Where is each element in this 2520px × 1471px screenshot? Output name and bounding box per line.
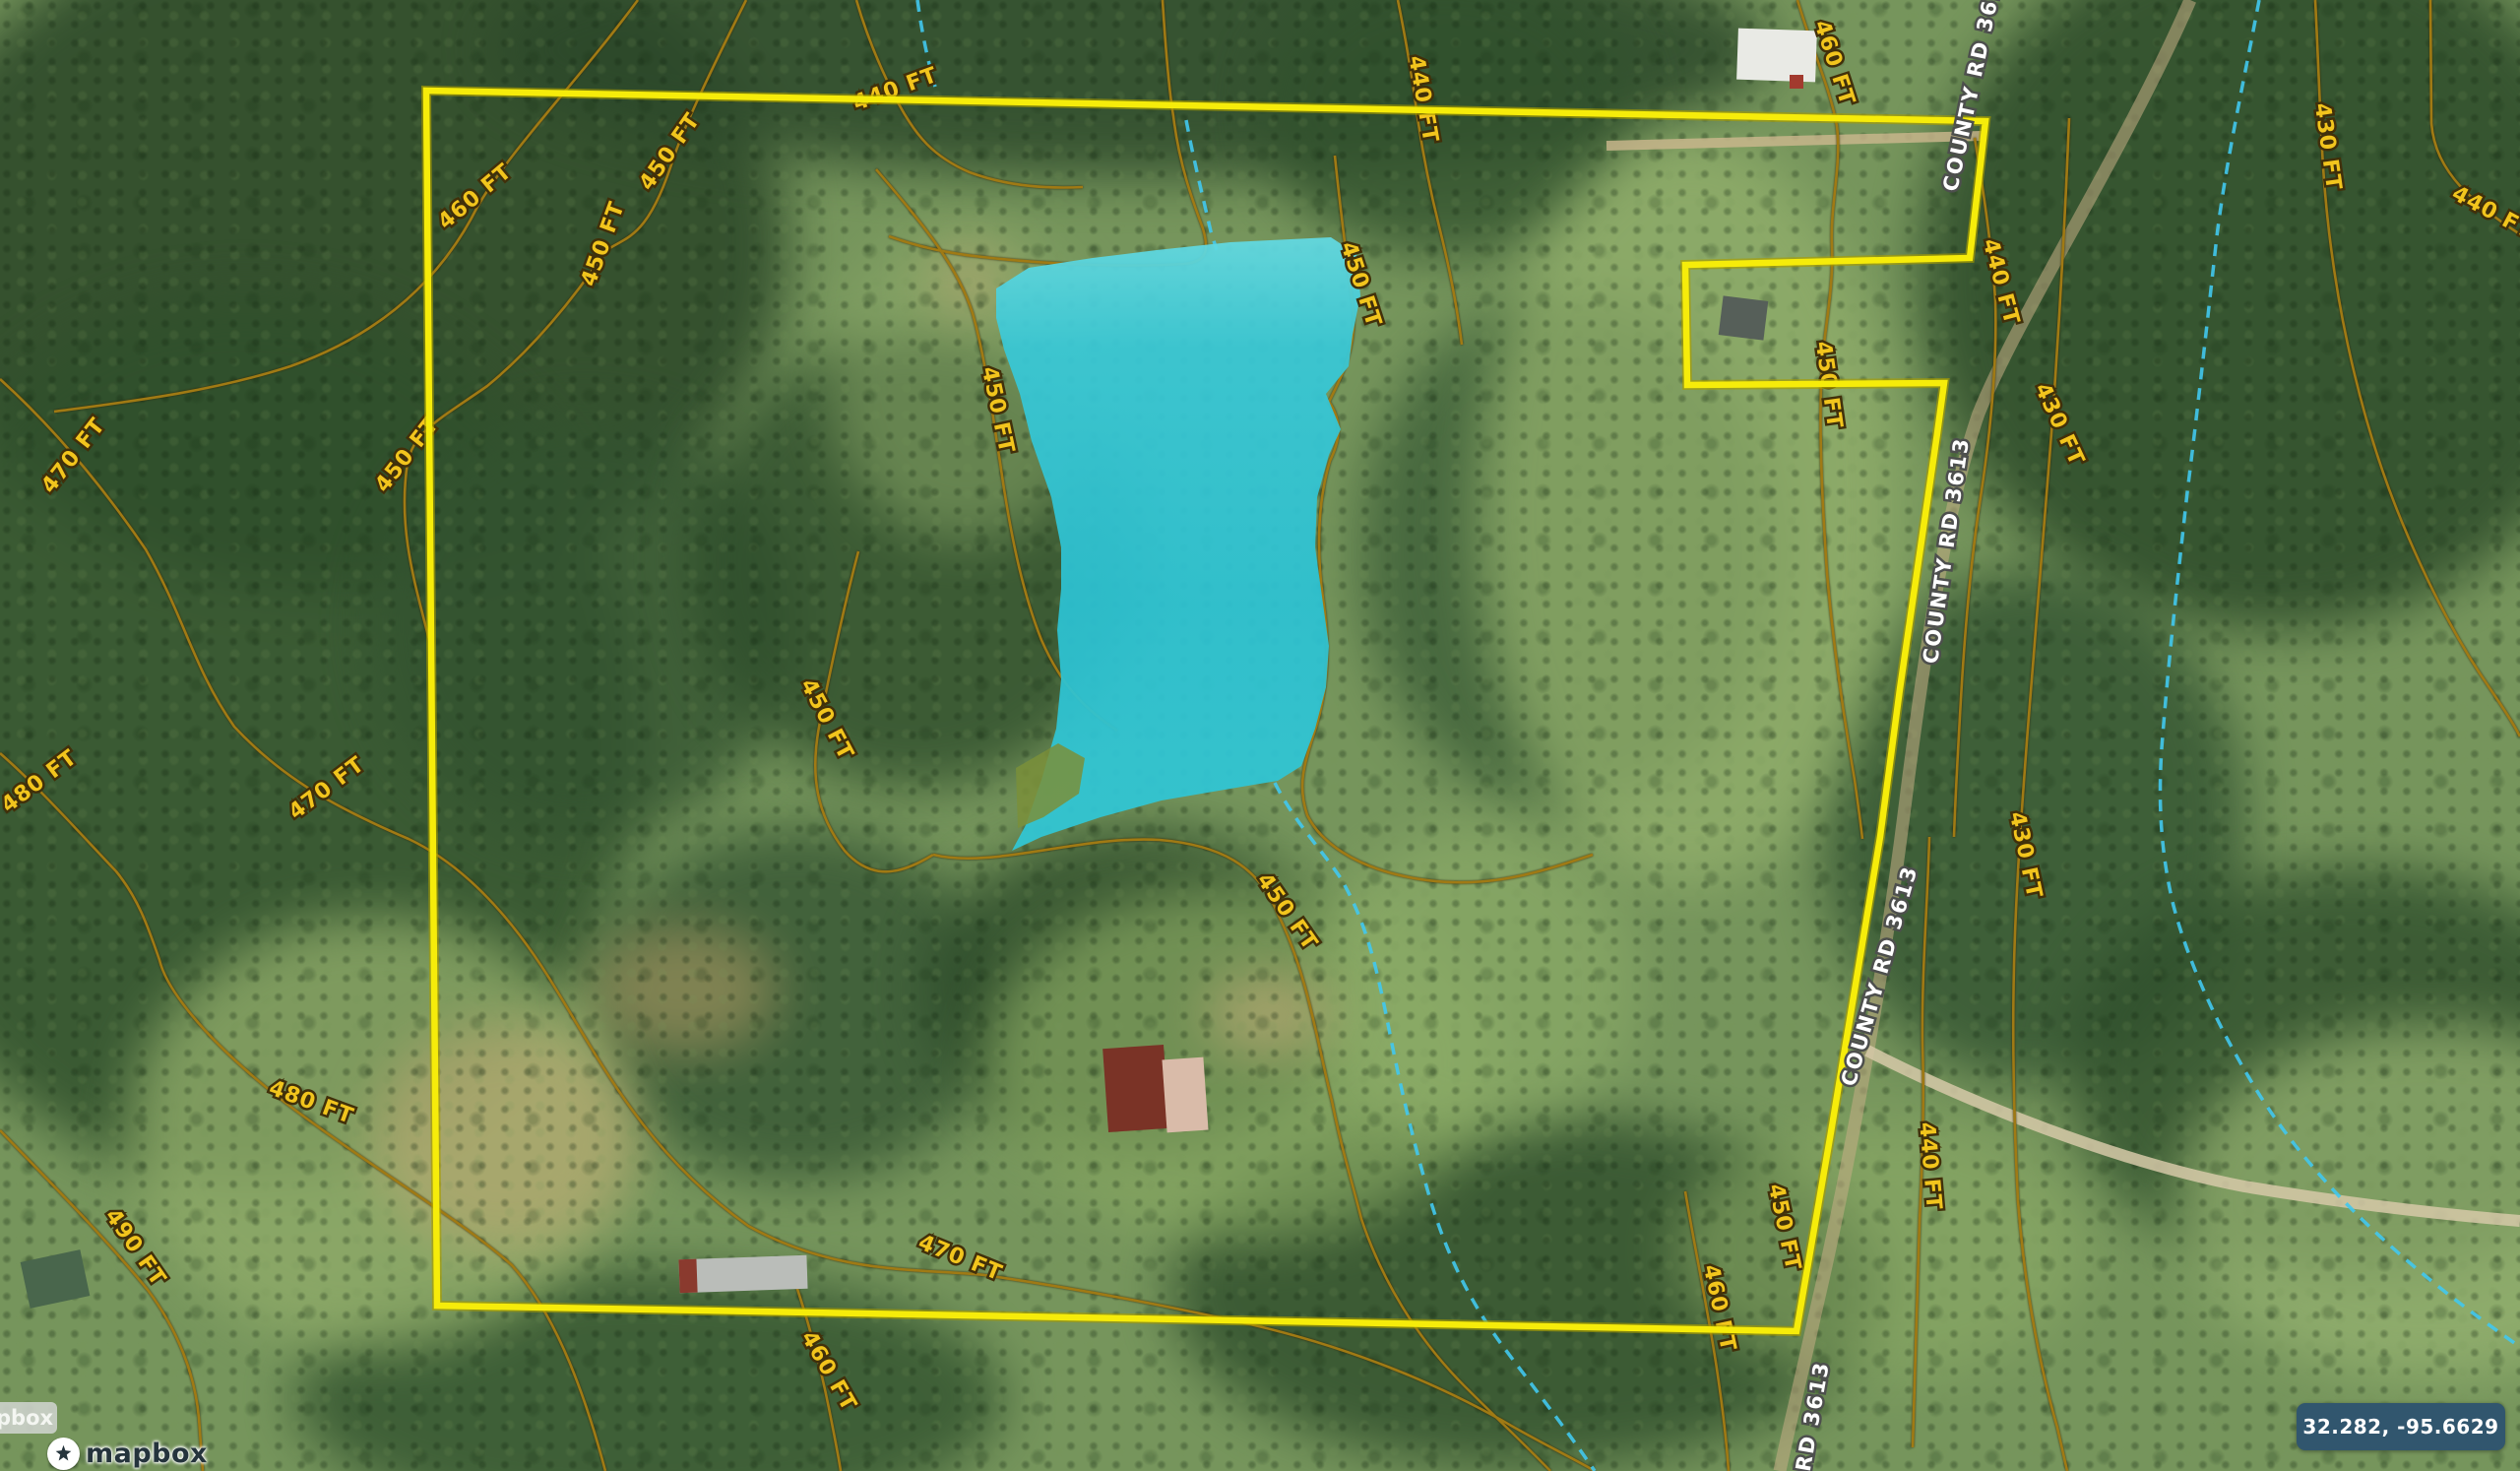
driveway-southeast xyxy=(1867,1051,2520,1221)
coordinates-text: 32.282, -95.6629 xyxy=(2302,1415,2498,1439)
county-road-3613-surface xyxy=(1780,0,2190,1471)
contour-elevation-label: 450 FT xyxy=(1251,868,1322,955)
contour-elevation-label: 430 FT xyxy=(2004,809,2047,901)
red-object xyxy=(1790,75,1803,89)
barn-red-end xyxy=(678,1259,697,1294)
long-barn xyxy=(678,1255,807,1294)
house-tan-section xyxy=(1162,1057,1208,1133)
mapbox-wordmark[interactable]: mapbox xyxy=(86,1439,208,1469)
contour-elevation-label: 430 FT xyxy=(2309,101,2346,192)
contour-elevation-label: 460 FT xyxy=(1698,1262,1740,1354)
road-name-label: COUNTY RD 3613 xyxy=(1938,0,2009,194)
gray-roof-building xyxy=(1719,295,1769,340)
mapbox-logo-icon[interactable] xyxy=(47,1438,80,1470)
contour-elevation-label: 440 FT xyxy=(1914,1121,1946,1211)
map-viewport[interactable]: 460 FT450 FT440 FT450 FT470 FT450 FT450 … xyxy=(0,0,2520,1471)
contour-elevation-label: 450 FT xyxy=(577,198,630,289)
contour-elevation-label: 480 FT xyxy=(0,745,82,818)
contour-elevation-label: 460 FT xyxy=(1808,18,1858,109)
contour-elevation-label: 440 FT xyxy=(1403,54,1442,146)
red-roof-house xyxy=(1102,1045,1169,1132)
map-vector-overlay: 460 FT450 FT440 FT450 FT470 FT450 FT450 … xyxy=(0,0,2520,1471)
coordinates-badge: 32.282, -95.6629 xyxy=(2297,1403,2505,1450)
contour-elevation-label: 450 FT xyxy=(635,108,706,195)
contour-elevation-label: 470 FT xyxy=(914,1231,1005,1287)
partial-watermark-box: pbox xyxy=(0,1402,57,1434)
contour-elevation-label: 440 FT xyxy=(1978,236,2024,328)
contour-elevation-label: 450 FT xyxy=(976,364,1019,456)
green-shed xyxy=(21,1249,91,1309)
driveway-north xyxy=(1606,136,1982,146)
contour-elevation-label: 450 FT xyxy=(1763,1182,1805,1273)
white-roof-building xyxy=(1736,29,1817,83)
mapbox-pin-glyph xyxy=(53,1443,74,1464)
contour-elevation-label: 430 FT xyxy=(2030,379,2090,470)
partial-watermark-text: pbox xyxy=(0,1406,53,1430)
contour-elevation-label: 440 FT xyxy=(850,63,941,116)
mapbox-attribution[interactable]: mapbox xyxy=(47,1438,208,1470)
contour-elevation-label: 440 FT xyxy=(2448,181,2520,244)
contour-elevation-label: 460 FT xyxy=(433,160,517,235)
